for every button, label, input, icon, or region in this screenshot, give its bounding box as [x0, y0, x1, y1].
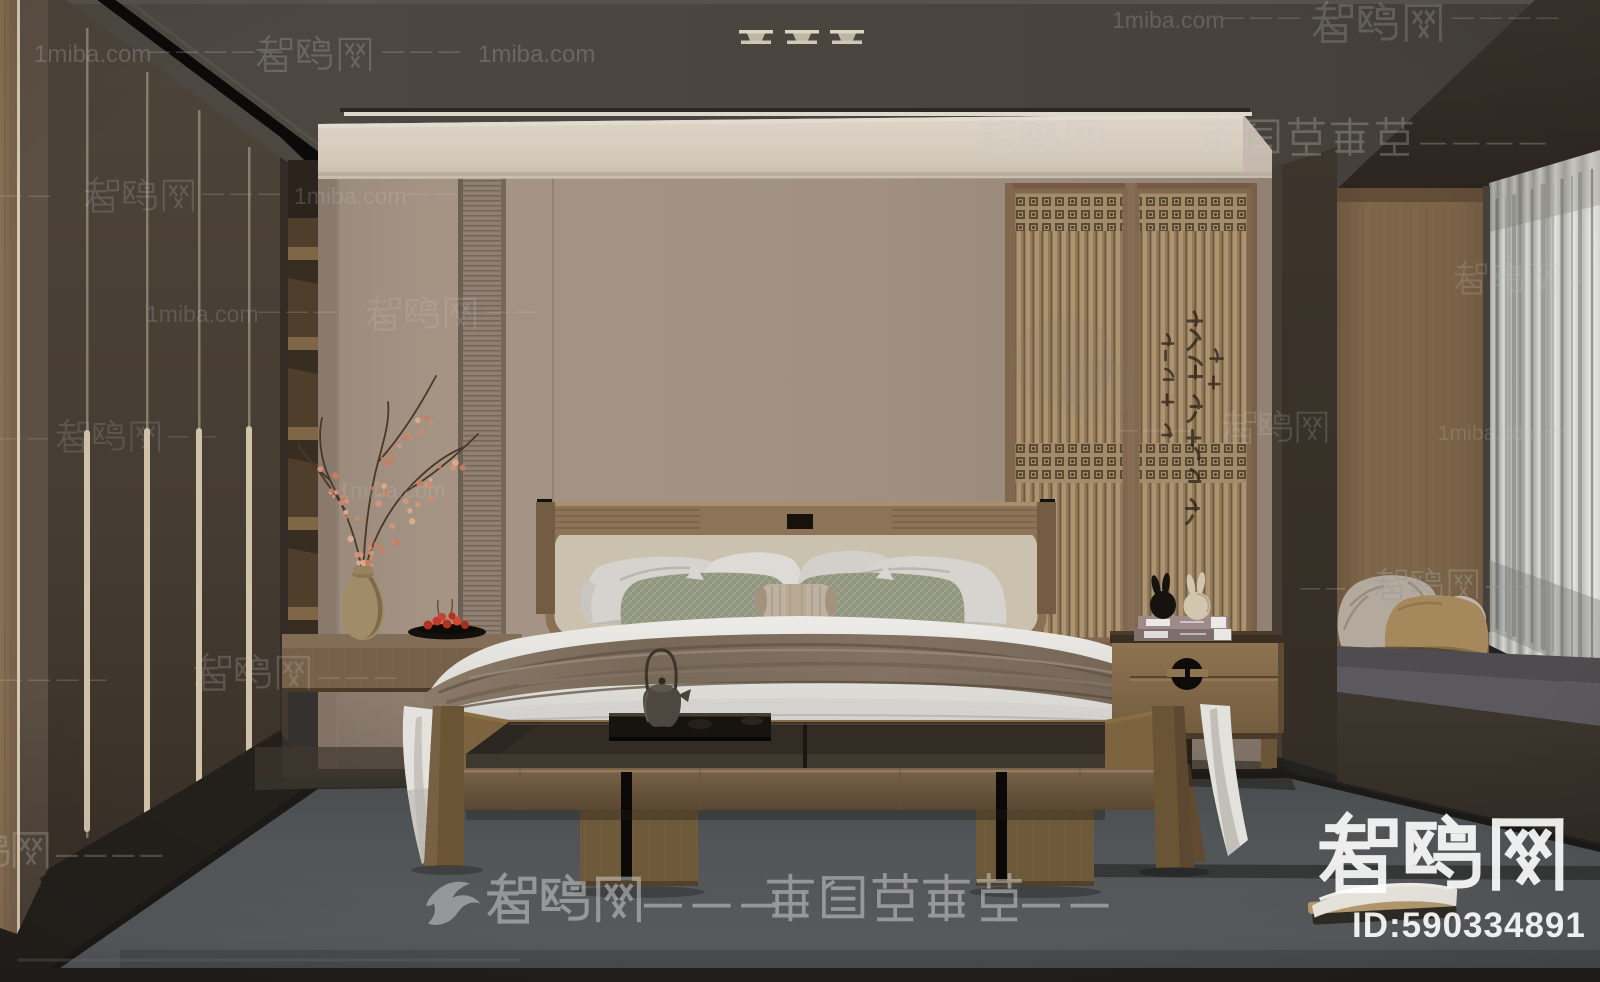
- svg-text:1miba.com: 1miba.com: [1112, 7, 1224, 33]
- svg-text:— — —: — — —: [1222, 4, 1300, 29]
- svg-text:— — — —: — — — —: [56, 842, 162, 867]
- svg-text:ID:590334891: ID:590334891: [1352, 906, 1586, 945]
- svg-text:— — — —: — — — —: [1452, 4, 1558, 29]
- svg-text:—: —: [1564, 269, 1584, 291]
- svg-text:— —: — —: [0, 426, 48, 449]
- svg-text:— —: — —: [486, 298, 536, 323]
- svg-text:— —: — —: [1300, 577, 1346, 599]
- svg-text:1miba.com: 1miba.com: [1438, 422, 1541, 445]
- svg-text:— — —: — — —: [202, 180, 280, 205]
- svg-text:1miba.com: 1miba.com: [294, 183, 406, 209]
- svg-text:— — —: — — —: [318, 664, 396, 689]
- svg-text:1miba.com: 1miba.com: [34, 41, 151, 68]
- svg-text:— —: — —: [1022, 883, 1109, 925]
- svg-text:— — —: — — —: [382, 38, 460, 63]
- svg-text:— — —: — — —: [644, 883, 779, 925]
- svg-text:— —: — —: [406, 180, 456, 205]
- svg-text:— — — —: — — — —: [0, 666, 106, 691]
- svg-text:— — —: — — —: [1118, 419, 1189, 441]
- svg-text:— — — —: — — — —: [1420, 126, 1546, 156]
- svg-text:1miba.com: 1miba.com: [338, 478, 446, 503]
- svg-text:—: —: [1545, 419, 1565, 441]
- svg-text:— — —: — — —: [258, 298, 336, 323]
- svg-text:— —: — —: [0, 182, 50, 207]
- svg-text:— —: — —: [168, 424, 216, 447]
- svg-text:— — —: — — —: [1486, 575, 1557, 597]
- svg-text:1miba.com: 1miba.com: [478, 41, 595, 68]
- svg-text:1miba.com: 1miba.com: [146, 301, 258, 327]
